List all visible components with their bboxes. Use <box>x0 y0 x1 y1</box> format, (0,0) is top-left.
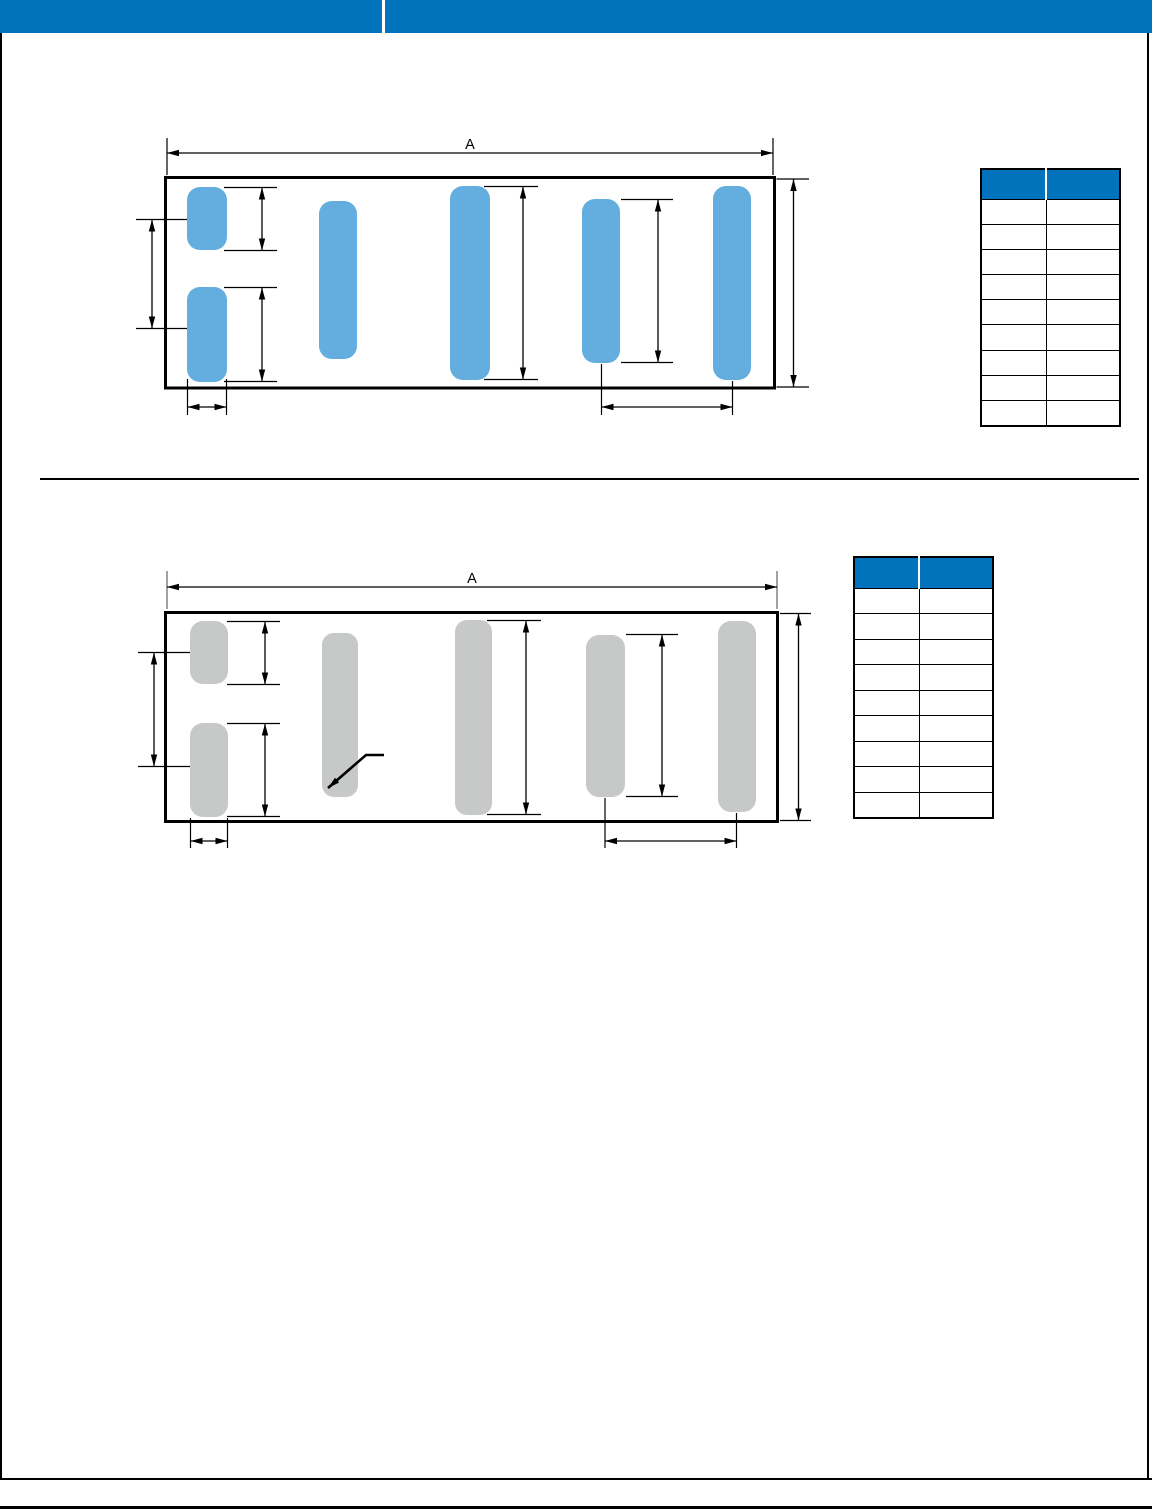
pad-3 <box>322 633 358 797</box>
header-bar-divider <box>382 0 385 33</box>
table-row <box>981 375 1120 400</box>
table-cell <box>854 690 919 716</box>
table-cell <box>981 275 1046 300</box>
table-cell <box>854 588 919 614</box>
table-row <box>981 249 1120 274</box>
pad-1 <box>190 621 228 684</box>
table-cell <box>1046 249 1120 274</box>
table-cell <box>919 614 993 640</box>
table-cell <box>1046 300 1120 325</box>
table-cell <box>981 401 1046 426</box>
land-pattern-diagram-top: A <box>120 125 830 425</box>
table-row <box>854 614 993 640</box>
table-cell <box>919 716 993 742</box>
table-row <box>854 767 993 793</box>
table-cell <box>854 792 919 818</box>
table-row <box>981 224 1120 249</box>
table-cell <box>1046 275 1120 300</box>
table-cell <box>981 325 1046 350</box>
table-row <box>981 300 1120 325</box>
pad-4 <box>450 186 490 380</box>
table-cell <box>919 639 993 665</box>
table-cell <box>919 690 993 716</box>
page-border-left <box>0 33 2 1479</box>
table-cell <box>981 249 1046 274</box>
table-cell <box>854 767 919 793</box>
pad-2 <box>190 723 228 817</box>
table-body <box>981 199 1120 426</box>
table-cell <box>1046 350 1120 375</box>
pad-3 <box>319 201 357 359</box>
table-cell <box>919 767 993 793</box>
table-row <box>981 275 1120 300</box>
table-header-cell <box>854 557 919 588</box>
table-cell <box>1046 325 1120 350</box>
table-cell <box>854 614 919 640</box>
table-header-cell <box>1046 169 1120 199</box>
table-cell <box>981 224 1046 249</box>
table-header-cell <box>981 169 1046 199</box>
table-header <box>981 169 1120 199</box>
table-row <box>854 665 993 691</box>
table-row <box>854 716 993 742</box>
table-row <box>854 690 993 716</box>
table-cell <box>854 716 919 742</box>
table-cell <box>919 741 993 767</box>
table-cell <box>1046 375 1120 400</box>
table-cell <box>981 375 1046 400</box>
pad-6 <box>713 186 751 380</box>
table-row <box>981 199 1120 224</box>
section-divider-rule <box>40 478 1139 480</box>
table-cell <box>919 588 993 614</box>
page-border-right <box>1147 33 1149 1479</box>
table-row <box>854 639 993 665</box>
table-cell <box>981 350 1046 375</box>
pad-5 <box>586 635 625 797</box>
table-cell <box>981 300 1046 325</box>
pad-5 <box>582 199 620 363</box>
table-cell <box>919 665 993 691</box>
table-header <box>854 557 993 588</box>
dim-label-a-top: A <box>465 137 475 153</box>
table-row <box>854 588 993 614</box>
table-cell <box>854 665 919 691</box>
table-body <box>854 588 993 818</box>
table-cell <box>1046 199 1120 224</box>
land-pattern-diagram-bottom: A <box>120 555 830 860</box>
dimension-overall-height <box>777 179 810 387</box>
pad-2 <box>187 287 227 382</box>
footer-rule <box>0 1478 1152 1480</box>
dimension-table-bottom <box>853 556 994 819</box>
table-cell <box>1046 224 1120 249</box>
table-cell <box>981 199 1046 224</box>
table-cell <box>854 639 919 665</box>
dimension-table-top <box>980 168 1121 427</box>
page-bottom-edge <box>0 1506 1152 1509</box>
datasheet-page: A <box>0 0 1152 1512</box>
table-row <box>981 401 1120 426</box>
pad-4 <box>455 620 492 815</box>
table-row <box>854 792 993 818</box>
table-cell <box>1046 401 1120 426</box>
table-cell <box>854 741 919 767</box>
table-row <box>981 325 1120 350</box>
dimension-overall-width: A <box>167 137 773 175</box>
pad-6 <box>718 621 756 812</box>
table-header-cell <box>919 557 993 588</box>
dim-label-a-bottom: A <box>467 571 477 587</box>
pad-1 <box>187 187 227 250</box>
table-row <box>981 350 1120 375</box>
table-row <box>854 741 993 767</box>
dimension-overall-width: A <box>167 571 777 609</box>
table-cell <box>919 792 993 818</box>
dimension-overall-height <box>780 614 811 821</box>
header-bar <box>0 0 1152 33</box>
